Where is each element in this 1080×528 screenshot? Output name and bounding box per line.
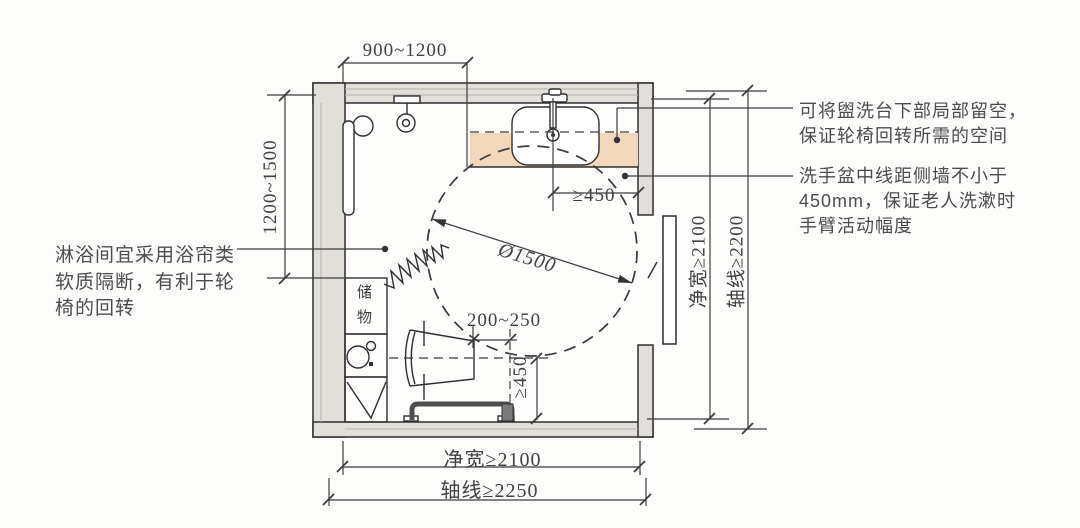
washing-machine-knob [367, 342, 376, 351]
shower-area [343, 96, 449, 288]
note-shower-curtain: 淋浴间宜采用浴帘类软质隔断，有利于轮椅的回转 [55, 243, 239, 323]
dim-top-width-graphic [338, 57, 473, 167]
sliding-door [648, 216, 676, 344]
storage-label: 储物 [353, 284, 374, 334]
grab-bar-vertical [343, 121, 354, 215]
dim-toilet-gap: 200~250 [439, 310, 569, 332]
faucet-nub [549, 89, 561, 95]
wall-right-upper [638, 83, 653, 215]
door-swing-tick [648, 262, 657, 278]
dim-toilet-offset-graphic [531, 353, 542, 424]
grab-bar-horizontal [404, 404, 514, 421]
dim-sink-offset: ≥450 [549, 185, 639, 207]
diameter-arrow-head-right [618, 275, 633, 283]
dim-shower-depth: 1200~1500 [260, 102, 282, 272]
washing-machine-drum [347, 346, 369, 368]
washing-machine [345, 334, 387, 377]
washing-machine-button [369, 362, 373, 366]
floor-drain-slope [347, 382, 386, 418]
floor-drain-box [345, 377, 387, 422]
shower-head-inner [403, 120, 410, 127]
door-leaf [663, 216, 676, 344]
dim-toilet-offset: ≥450 [510, 337, 532, 417]
diameter-arrow-head-left [432, 219, 447, 227]
leader-dot-underspace [614, 137, 620, 143]
wall-right-lower [638, 345, 653, 437]
bathroom-plan-figure: 900~1200 1200~1500 净宽≥2100 轴线≥2200 净宽≥21… [0, 0, 1080, 528]
leader-dot-clearance [622, 173, 628, 179]
dim-bottom-axis-width: 轴线≥2250 [387, 474, 592, 503]
shower-curtain-zigzag [384, 245, 449, 288]
grab-bar-rail [412, 404, 512, 420]
leader-dot-shower [382, 246, 388, 252]
dim-right-clear-depth: 净宽≥2100 [684, 177, 711, 347]
shower-control-knob [353, 116, 373, 136]
wall-top [313, 83, 653, 103]
shower-bracket [394, 96, 420, 103]
dim-right-axis-depth: 轴线≥2200 [722, 177, 749, 347]
shower-head-icon [397, 114, 415, 132]
note-basin-underspace: 可将盥洗台下部局部留空，保证轮椅回转所需的空间 [799, 99, 1034, 149]
dim-top-width: 900~1200 [343, 40, 467, 62]
note-basin-clearance: 洗手盆中线距侧墙不小于450mm，保证老人洗漱时手臂活动幅度 [799, 164, 1034, 240]
wall-left [313, 83, 345, 437]
dim-bottom-clear-width: 净宽≥2100 [390, 443, 595, 472]
